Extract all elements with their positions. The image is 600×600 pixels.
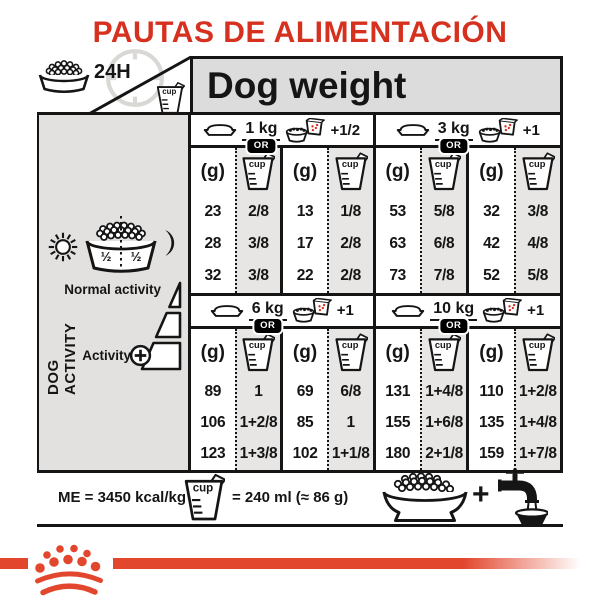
food-sachet-bowl-icon (482, 298, 522, 323)
feeding-guide-label: PAUTAS DE ALIMENTACIÓN 24H Dog weight (0, 0, 600, 600)
weight-label: 3 kg (438, 120, 470, 137)
cup-value: 3/8 (237, 228, 281, 260)
cup-value: 1+3/8 (237, 439, 281, 470)
grams-column: (g) 23 28 32 (191, 148, 235, 293)
cup-column: 3/8 4/8 5/8 (514, 148, 560, 293)
cup-value: 1+6/8 (422, 408, 466, 439)
weight-header: 10 kg OR +1 (376, 296, 561, 329)
measuring-cup-icon (183, 473, 225, 523)
cup-column: 2/8 3/8 3/8 (235, 148, 281, 293)
grams-value: 13 (283, 196, 327, 228)
royal-canin-crown-icon (30, 542, 108, 598)
grams-value: 155 (376, 408, 420, 439)
measuring-cup-icon (427, 152, 461, 192)
cup-extra-label: +1/2 (330, 122, 360, 139)
grams-column: (g) 53 63 73 (376, 148, 420, 293)
grams-column: (g) 13 17 22 (280, 148, 327, 293)
measuring-cup-icon (241, 333, 275, 373)
grams-value: 52 (469, 260, 513, 292)
cup-column: 5/8 6/8 7/8 (420, 148, 466, 293)
cup-equivalence-label: = 240 ml (≈ 86 g) (232, 489, 348, 506)
dog-activity-vertical-label: DOG ACTIVITY (45, 283, 79, 395)
dog-bowl-icon (396, 123, 430, 137)
dog-weight-title: Dog weight (207, 65, 406, 107)
grams-value: 131 (376, 377, 420, 408)
moon-icon (158, 227, 180, 259)
cup-value: 2/8 (329, 228, 373, 260)
weight-section-1kg: 1 kg OR +1/2 (g) 23 28 32 2/8 3/8 3/8 (191, 115, 376, 293)
kibble-bowl-icon (36, 58, 92, 96)
or-badge: OR (246, 137, 277, 155)
weight-section-3kg: 3 kg OR +1 (g) 53 63 73 5/8 6/8 7/8 (376, 115, 561, 293)
cup-value: 1+2/8 (516, 377, 560, 408)
metabolizable-energy-label: ME = 3450 kcal/kg (58, 489, 186, 506)
measuring-cup-icon (241, 152, 275, 192)
measuring-cup-icon (521, 333, 555, 373)
cup-value: 2/8 (329, 260, 373, 292)
grams-header: (g) (479, 161, 503, 183)
cup-value: 7/8 (422, 260, 466, 292)
grams-value: 63 (376, 228, 420, 260)
or-badge: OR (252, 317, 283, 335)
grams-value: 159 (469, 439, 513, 470)
grams-value: 89 (191, 377, 235, 408)
cup-extra-label: +1 (527, 302, 544, 319)
cup-column: 1/8 2/8 2/8 (327, 148, 373, 293)
weight-section-10kg: 10 kg OR +1 (g) 131 155 180 1+4/8 1+6/8 … (376, 293, 561, 471)
grams-column: (g) 89 106 123 (191, 329, 235, 471)
cup-value: 1 (237, 377, 281, 408)
feeding-table: 1 kg OR +1/2 (g) 23 28 32 2/8 3/8 3/8 (188, 112, 563, 473)
grams-header: (g) (293, 342, 317, 364)
cup-extra-label: +1 (523, 122, 540, 139)
cup-value: 6/8 (422, 228, 466, 260)
measuring-cup-icon (334, 333, 368, 373)
grams-value: 123 (191, 439, 235, 470)
cup-value: 2+1/8 (422, 439, 466, 470)
grams-value: 53 (376, 196, 420, 228)
food-sachet-bowl-icon (478, 118, 518, 143)
cup-value: 5/8 (516, 260, 560, 292)
grams-header: (g) (293, 161, 317, 183)
activity-label: Activity (82, 348, 131, 363)
grams-value: 69 (283, 377, 327, 408)
or-badge: OR (438, 137, 469, 155)
cup-value: 3/8 (237, 260, 281, 292)
grams-header: (g) (479, 342, 503, 364)
dog-bowl-icon (210, 304, 244, 318)
measuring-cup-icon (334, 152, 368, 192)
grams-column: (g) 69 85 102 (280, 329, 327, 471)
grams-header: (g) (201, 161, 225, 183)
weight-label: 1 kg (245, 120, 277, 137)
grams-value: 23 (191, 196, 235, 228)
cup-value: 1+1/8 (329, 439, 373, 470)
dog-bowl-icon (391, 304, 425, 318)
weight-label: 6 kg (252, 300, 284, 317)
food-sachet-bowl-icon (292, 298, 332, 323)
sun-icon (44, 228, 82, 266)
grams-value: 32 (469, 196, 513, 228)
weight-header: 6 kg OR +1 (191, 296, 373, 329)
weight-section-6kg: 6 kg OR +1 (g) 89 106 123 1 1+2/8 1+3/8 (191, 293, 376, 471)
cup-column: 1 1+2/8 1+3/8 (235, 329, 281, 471)
cup-value: 1 (329, 408, 373, 439)
dog-activity-sidebar: ½ ½ DOG ACTIVITY Normal activity Activit… (37, 112, 188, 473)
dog-weight-header: Dog weight (190, 56, 563, 115)
grams-value: 17 (283, 228, 327, 260)
grams-header: (g) (201, 342, 225, 364)
grams-header: (g) (386, 342, 410, 364)
grams-value: 106 (191, 408, 235, 439)
weight-header: 3 kg OR +1 (376, 115, 561, 148)
brand-bar (113, 558, 600, 569)
half-ration-right: ½ (131, 249, 142, 264)
footer-divider (37, 524, 563, 527)
page-title: PAUTAS DE ALIMENTACIÓN (0, 16, 600, 50)
grams-value: 42 (469, 228, 513, 260)
grams-value: 85 (283, 408, 327, 439)
grams-value: 180 (376, 439, 420, 470)
cup-value: 4/8 (516, 228, 560, 260)
brand-bar-left (0, 558, 28, 569)
grams-value: 32 (191, 260, 235, 292)
cup-value: 5/8 (422, 196, 466, 228)
measuring-cup-icon (521, 152, 555, 192)
measuring-cup-icon (155, 82, 185, 115)
cup-column: 6/8 1 1+1/8 (327, 329, 373, 471)
cup-value: 2/8 (237, 196, 281, 228)
grams-value: 110 (469, 377, 513, 408)
half-ration-left: ½ (101, 249, 112, 264)
cup-value: 3/8 (516, 196, 560, 228)
cup-value: 1+7/8 (516, 439, 560, 470)
weight-label: 10 kg (433, 300, 474, 317)
food-sachet-bowl-icon (285, 118, 325, 143)
cup-value: 6/8 (329, 377, 373, 408)
cup-value: 1+2/8 (237, 408, 281, 439)
plus-circle-icon (129, 344, 152, 367)
water-tap-icon (496, 468, 548, 526)
cup-extra-label: +1 (337, 302, 354, 319)
dog-bowl-icon (203, 123, 237, 137)
split-meal-bowl-icon: ½ ½ (83, 216, 159, 280)
kibble-bowl-icon (380, 472, 470, 527)
cup-column: 1+4/8 1+6/8 2+1/8 (420, 329, 466, 471)
weight-header: 1 kg OR +1/2 (191, 115, 373, 148)
cup-value: 1+4/8 (422, 377, 466, 408)
measuring-cup-icon (427, 333, 461, 373)
cup-value: 1+4/8 (516, 408, 560, 439)
grams-value: 73 (376, 260, 420, 292)
grams-value: 22 (283, 260, 327, 292)
grams-value: 102 (283, 439, 327, 470)
grams-column: (g) 131 155 180 (376, 329, 420, 471)
plus-sign: + (472, 478, 490, 512)
or-badge: OR (438, 317, 469, 335)
cup-column: 1+2/8 1+4/8 1+7/8 (514, 329, 560, 471)
grams-value: 28 (191, 228, 235, 260)
grams-column: (g) 110 135 159 (466, 329, 513, 471)
grams-value: 135 (469, 408, 513, 439)
cup-value: 1/8 (329, 196, 373, 228)
grams-column: (g) 32 42 52 (466, 148, 513, 293)
grams-header: (g) (386, 161, 410, 183)
